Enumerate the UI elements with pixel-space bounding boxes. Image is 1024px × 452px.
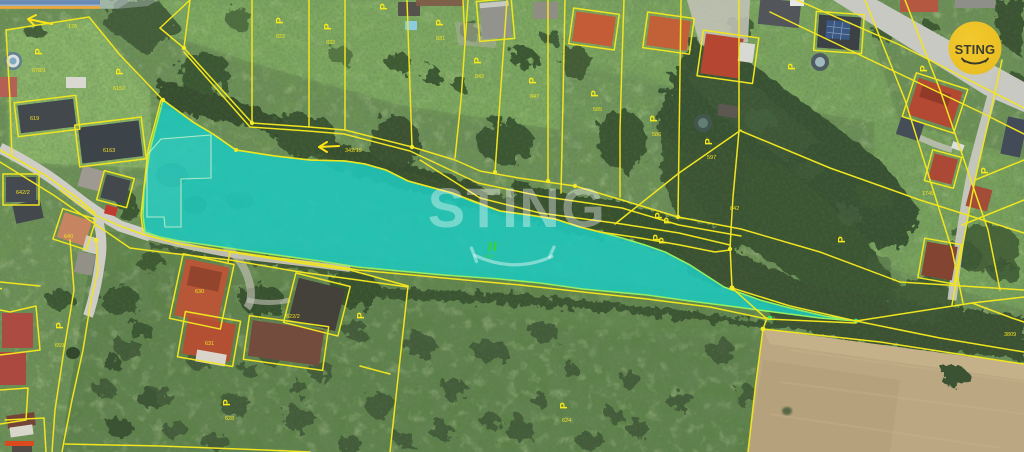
svg-text:P: P: [0, 283, 5, 290]
svg-text:628: 628: [225, 416, 234, 422]
svg-text:STING: STING: [428, 176, 607, 239]
svg-text:P: P: [704, 138, 715, 145]
svg-text:586: 586: [652, 132, 661, 138]
svg-text:619: 619: [30, 116, 39, 122]
svg-text:P: P: [837, 236, 848, 243]
svg-text:847: 847: [530, 94, 539, 100]
svg-text:P: P: [222, 399, 233, 406]
svg-text:P: P: [663, 217, 674, 224]
svg-text:P: P: [590, 90, 601, 97]
svg-text:622/2: 622/2: [286, 314, 300, 320]
svg-text:3809: 3809: [1004, 332, 1016, 338]
svg-text:P: P: [787, 63, 798, 70]
svg-text:640: 640: [64, 234, 73, 240]
svg-text:P: P: [919, 65, 930, 72]
svg-text:P: P: [356, 312, 367, 319]
svg-text:642/2: 642/2: [16, 190, 30, 196]
svg-text:822: 822: [276, 34, 285, 40]
svg-text:659: 659: [55, 343, 64, 349]
svg-text:630: 630: [195, 289, 204, 295]
svg-text:585: 585: [593, 107, 602, 113]
svg-text:STING: STING: [955, 42, 996, 57]
svg-text:P: P: [34, 48, 45, 55]
svg-text:6163: 6163: [103, 148, 115, 154]
svg-text:342/19: 342/19: [345, 148, 362, 154]
svg-text:P: P: [559, 402, 570, 409]
svg-text:P: P: [115, 68, 126, 75]
svg-text:842: 842: [730, 206, 739, 212]
svg-text:831: 831: [436, 36, 445, 42]
svg-text:P: P: [649, 115, 660, 122]
svg-text:P: P: [275, 17, 286, 24]
svg-text:P: P: [379, 3, 390, 10]
svg-text:P: P: [323, 23, 334, 30]
svg-text:842: 842: [475, 74, 484, 80]
svg-text:597: 597: [707, 155, 716, 161]
svg-text:678/1: 678/1: [32, 68, 46, 74]
svg-text:176: 176: [68, 24, 77, 30]
svg-text:1745: 1745: [922, 191, 934, 197]
svg-text:P: P: [980, 167, 991, 174]
svg-text:832: 832: [326, 40, 335, 46]
svg-text:P: P: [435, 19, 446, 26]
svg-text:P: P: [658, 237, 669, 244]
svg-text:P: P: [473, 57, 484, 64]
svg-text:624: 624: [562, 418, 571, 424]
svg-text:6152: 6152: [113, 86, 125, 92]
svg-text:631: 631: [205, 341, 214, 347]
svg-text:P: P: [55, 322, 66, 329]
svg-text:P: P: [528, 77, 539, 84]
